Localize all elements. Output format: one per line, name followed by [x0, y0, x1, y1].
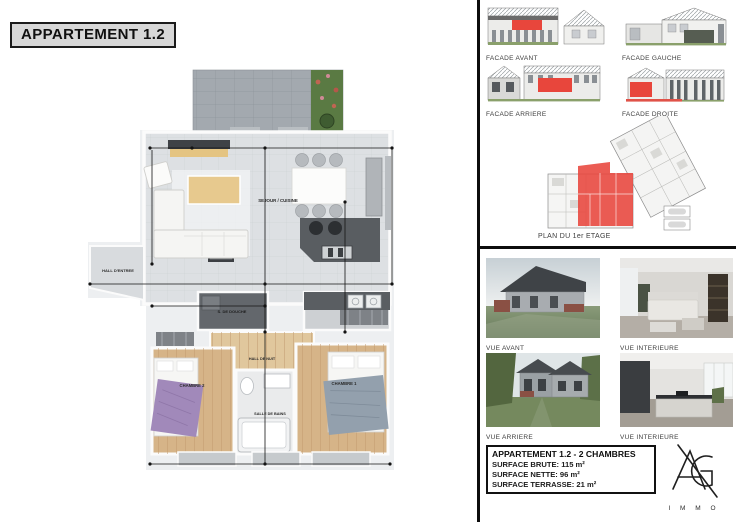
summary-surface-nette: SURFACE NETTE: 96 m² [492, 470, 650, 479]
room-label-hall-nuit: HALL DE NUIT [249, 357, 276, 361]
summary-surface-brute: SURFACE BRUTE: 115 m² [492, 460, 650, 469]
photo-vue-avant: VUE AVANT [486, 258, 600, 352]
facade-arriere-drawing [486, 62, 604, 104]
sink [322, 246, 352, 259]
bed-2 [151, 358, 204, 437]
vue-avant-image [486, 258, 600, 338]
key-plan-parking [664, 206, 690, 230]
photo-vue-arriere: VUE ARRIERE [486, 353, 600, 441]
photo-vue-interieure-salon: VUE INTERIEURE [620, 258, 733, 352]
vue-interieure-salon-image [620, 258, 733, 338]
ag-monogram-icon [665, 443, 723, 499]
etage-key-plan [538, 116, 716, 232]
facade-avant-drawing [486, 4, 608, 48]
dryer-icon [366, 295, 381, 308]
terrace [193, 70, 343, 134]
room-label-douche: S. DE DOUCHE [218, 309, 247, 314]
wardrobe [340, 310, 388, 325]
vue-arriere-label: VUE ARRIERE [486, 434, 600, 441]
bedroom-2 [151, 332, 234, 454]
apartment-floorplan: SEJOUR / CUISINE HALL D'ENTREE S. DE DOU… [82, 52, 402, 477]
tree [486, 353, 516, 407]
vue-interieure-cuisine-label: VUE INTERIEURE [620, 434, 733, 441]
page-title-text: APPARTEMENT 1.2 [21, 26, 165, 43]
bed-1 [323, 352, 388, 435]
room-label-hall-entree: HALL D'ENTREE [102, 268, 134, 273]
logo-wordmark: I M M O [662, 505, 726, 512]
kitchen-island [300, 218, 380, 262]
tall-cabinet [366, 158, 382, 216]
dining-table [292, 168, 346, 204]
stool [309, 221, 323, 235]
agency-logo: I M M O [662, 443, 726, 512]
balcony-window-strip [385, 156, 391, 230]
apartment-summary-box: APPARTEMENT 1.2 - 2 CHAMBRES SURFACE BRU… [486, 445, 656, 494]
toilet [241, 378, 254, 395]
room-label-sdb: SALLE DE BAINS [254, 412, 286, 416]
facade-gauche-drawing [622, 6, 732, 48]
photo-vue-interieure-cuisine: VUE INTERIEURE [620, 353, 733, 441]
key-plan-highlight [578, 162, 633, 226]
vue-arriere-image [486, 353, 600, 427]
facade-avant-label: FACADE AVANT [486, 55, 608, 62]
brochure-page: APPARTEMENT 1.2 [0, 0, 736, 522]
facade-arriere-figure: FACADE ARRIERE [486, 62, 604, 118]
highlight-red [630, 82, 652, 97]
coffee-table [188, 176, 240, 204]
summary-surface-terrasse: SURFACE TERRASSE: 21 m² [492, 480, 650, 489]
etage-plan-label: PLAN DU 1er ETAGE [538, 233, 658, 240]
washbasin [264, 374, 290, 388]
plant [712, 387, 724, 403]
facade-gauche-label: FACADE GAUCHE [622, 55, 732, 62]
page-title: APPARTEMENT 1.2 [10, 22, 176, 48]
room-label-chambre2: CHAMBRE 2 [180, 383, 206, 388]
room-label-sejour: SEJOUR / CUISINE [258, 198, 298, 203]
kitchen-island [656, 399, 712, 417]
facade-droite-figure: FACADE DROITE [622, 66, 728, 118]
vertical-divider [477, 0, 480, 522]
dining-set [292, 154, 346, 218]
facade-gauche-figure: FACADE GAUCHE [622, 6, 732, 62]
highlight-red [538, 78, 572, 92]
summary-title: APPARTEMENT 1.2 - 2 CHAMBRES [492, 449, 650, 459]
facade-droite-drawing [622, 66, 728, 104]
stool [328, 221, 342, 235]
kitchen-cabinets [620, 361, 650, 413]
room-label-chambre1: CHAMBRE 1 [332, 381, 358, 386]
highlight-red [512, 20, 542, 30]
facade-avant-figure: FACADE AVANT [486, 4, 608, 62]
terrace-plant-pot [320, 114, 334, 128]
vue-avant-label: VUE AVANT [486, 345, 600, 352]
vue-interieure-cuisine-image [620, 353, 733, 427]
vue-interieure-salon-label: VUE INTERIEURE [620, 345, 733, 352]
washer-icon [348, 295, 363, 308]
horizontal-divider [480, 246, 736, 249]
